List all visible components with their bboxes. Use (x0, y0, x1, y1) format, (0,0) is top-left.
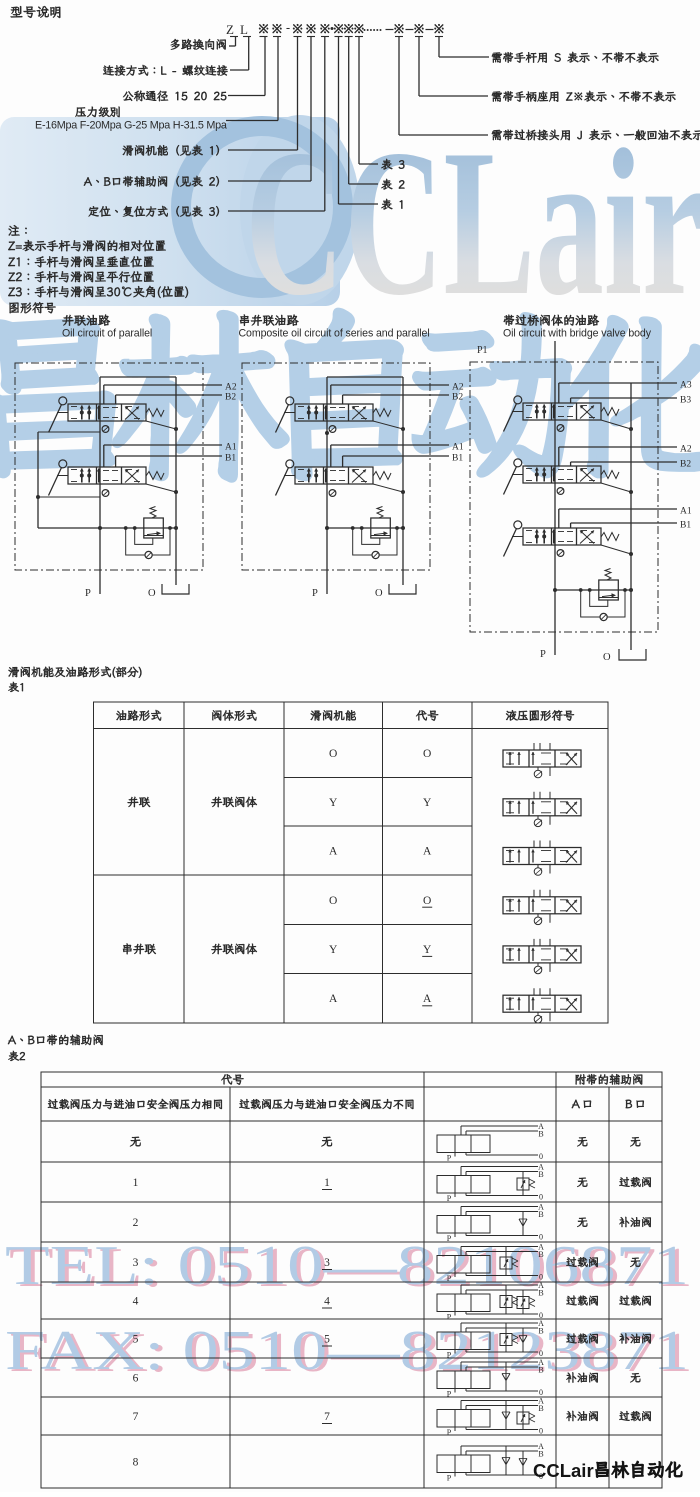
svg-text:B: B (538, 1210, 543, 1219)
svg-text:A2: A2 (452, 383, 464, 393)
svg-text:0: 0 (539, 1427, 543, 1436)
svg-text:P1: P1 (477, 345, 488, 356)
svg-text:7: 7 (324, 1411, 330, 1423)
svg-text:0: 0 (539, 1152, 543, 1161)
svg-text:B2: B2 (452, 393, 463, 403)
svg-text:O: O (148, 588, 156, 599)
svg-text:P: P (447, 1234, 452, 1243)
svg-text:Y: Y (423, 797, 432, 809)
svg-text:P: P (447, 1428, 452, 1437)
svg-text:5: 5 (324, 1334, 330, 1346)
svg-text:B2: B2 (225, 393, 236, 403)
svg-text:7: 7 (133, 1411, 139, 1423)
svg-text:4: 4 (133, 1296, 139, 1308)
svg-text:A1: A1 (680, 507, 692, 517)
svg-text:Composite oil circuit of serie: Composite oil circuit of series and para… (239, 328, 430, 340)
svg-text:A: A (329, 846, 338, 858)
svg-text:Z: Z (226, 22, 234, 37)
svg-text:4: 4 (324, 1296, 330, 1308)
svg-text:P: P (447, 1390, 452, 1399)
svg-text:A2: A2 (225, 383, 237, 393)
svg-text:B2: B2 (680, 460, 691, 470)
svg-text:CCLair: CCLair (245, 107, 700, 339)
svg-text:3: 3 (324, 1257, 330, 1269)
svg-text:B1: B1 (452, 454, 463, 464)
svg-text:Y: Y (329, 797, 338, 809)
svg-text:P: P (447, 1474, 452, 1483)
svg-text:B1: B1 (680, 521, 691, 531)
svg-text:B: B (538, 1289, 543, 1298)
svg-text:O: O (603, 652, 611, 663)
svg-text:A3: A3 (680, 381, 692, 391)
svg-text:B: B (538, 1170, 543, 1179)
svg-text:O: O (375, 588, 383, 599)
svg-text:B: B (538, 1250, 543, 1259)
svg-text:A: A (423, 993, 432, 1005)
svg-text:A: A (423, 846, 432, 858)
svg-text:P: P (447, 1274, 452, 1283)
svg-text:A1: A1 (225, 443, 237, 453)
svg-text:P: P (540, 649, 546, 660)
svg-text:B: B (538, 1366, 543, 1375)
svg-text:P: P (447, 1313, 452, 1322)
svg-text:L: L (240, 22, 248, 37)
svg-text:A2: A2 (680, 445, 692, 455)
svg-text:B: B (538, 1404, 543, 1413)
svg-text:P: P (85, 588, 91, 599)
svg-text:P: P (312, 588, 318, 599)
svg-text:P: P (447, 1351, 452, 1360)
svg-text:A1: A1 (452, 443, 464, 453)
svg-text:CCLair: CCLair (533, 1460, 594, 1481)
svg-text:6: 6 (133, 1373, 139, 1385)
svg-text:O: O (329, 748, 337, 760)
svg-text:-: - (286, 20, 290, 35)
svg-text:B: B (538, 1130, 543, 1139)
svg-text:5: 5 (133, 1334, 139, 1346)
svg-text:O: O (423, 895, 431, 907)
svg-text:3: 3 (133, 1257, 139, 1269)
svg-text:0: 0 (539, 1349, 543, 1358)
svg-text:E-16Mpa F-20Mpa G-25 Mpa H-31.: E-16Mpa F-20Mpa G-25 Mpa H-31.5 Mpa (35, 120, 227, 132)
svg-text:Y: Y (329, 944, 338, 956)
svg-text:O: O (423, 748, 431, 760)
svg-text:B: B (538, 1450, 543, 1459)
svg-text:1: 1 (324, 1177, 330, 1189)
svg-text:0: 0 (539, 1233, 543, 1242)
svg-text:Oil circuit of parallel: Oil circuit of parallel (62, 328, 152, 340)
svg-text:O: O (329, 895, 337, 907)
svg-text:8: 8 (133, 1457, 139, 1469)
svg-text:2: 2 (133, 1217, 139, 1229)
svg-text:Oil circuit with bridge valve: Oil circuit with bridge valve body (503, 328, 652, 340)
svg-text:P: P (447, 1154, 452, 1163)
svg-text:P: P (447, 1194, 452, 1203)
svg-text:0: 0 (539, 1193, 543, 1202)
svg-text:FAX: 0510—82123871: FAX: 0510—82123871 (5, 1320, 689, 1382)
svg-text:Y: Y (423, 944, 432, 956)
svg-text:B: B (538, 1327, 543, 1336)
svg-text:1: 1 (133, 1177, 139, 1189)
svg-text:B3: B3 (680, 396, 691, 406)
svg-text:A: A (329, 993, 338, 1005)
svg-text:B1: B1 (225, 454, 236, 464)
